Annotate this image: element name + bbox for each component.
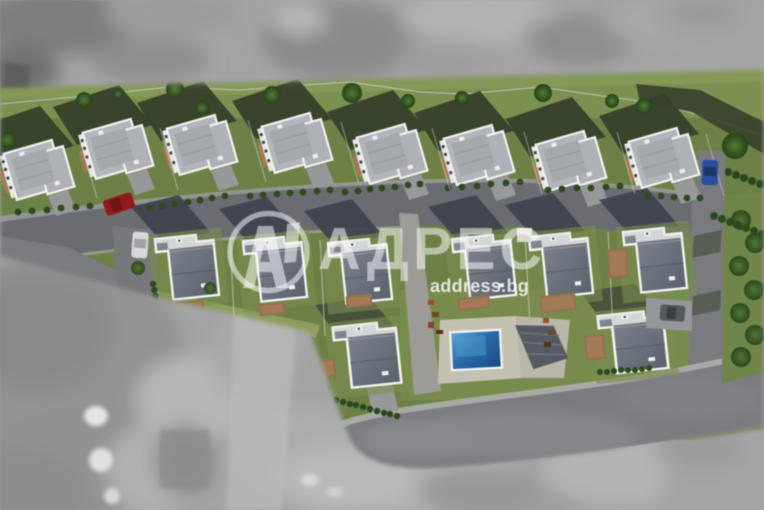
svg-text:address.bg: address.bg <box>430 276 529 296</box>
svg-text:АДРЕС: АДРЕС <box>318 216 546 282</box>
